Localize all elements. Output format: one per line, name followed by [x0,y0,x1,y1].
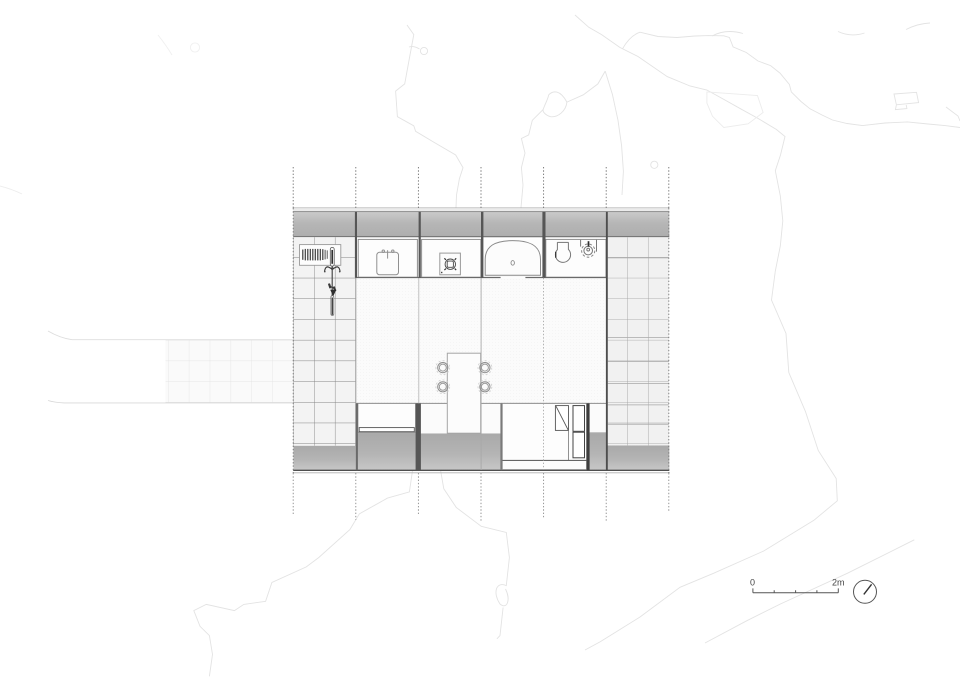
svg-text:0: 0 [750,578,755,588]
svg-text:2m: 2m [832,578,845,588]
